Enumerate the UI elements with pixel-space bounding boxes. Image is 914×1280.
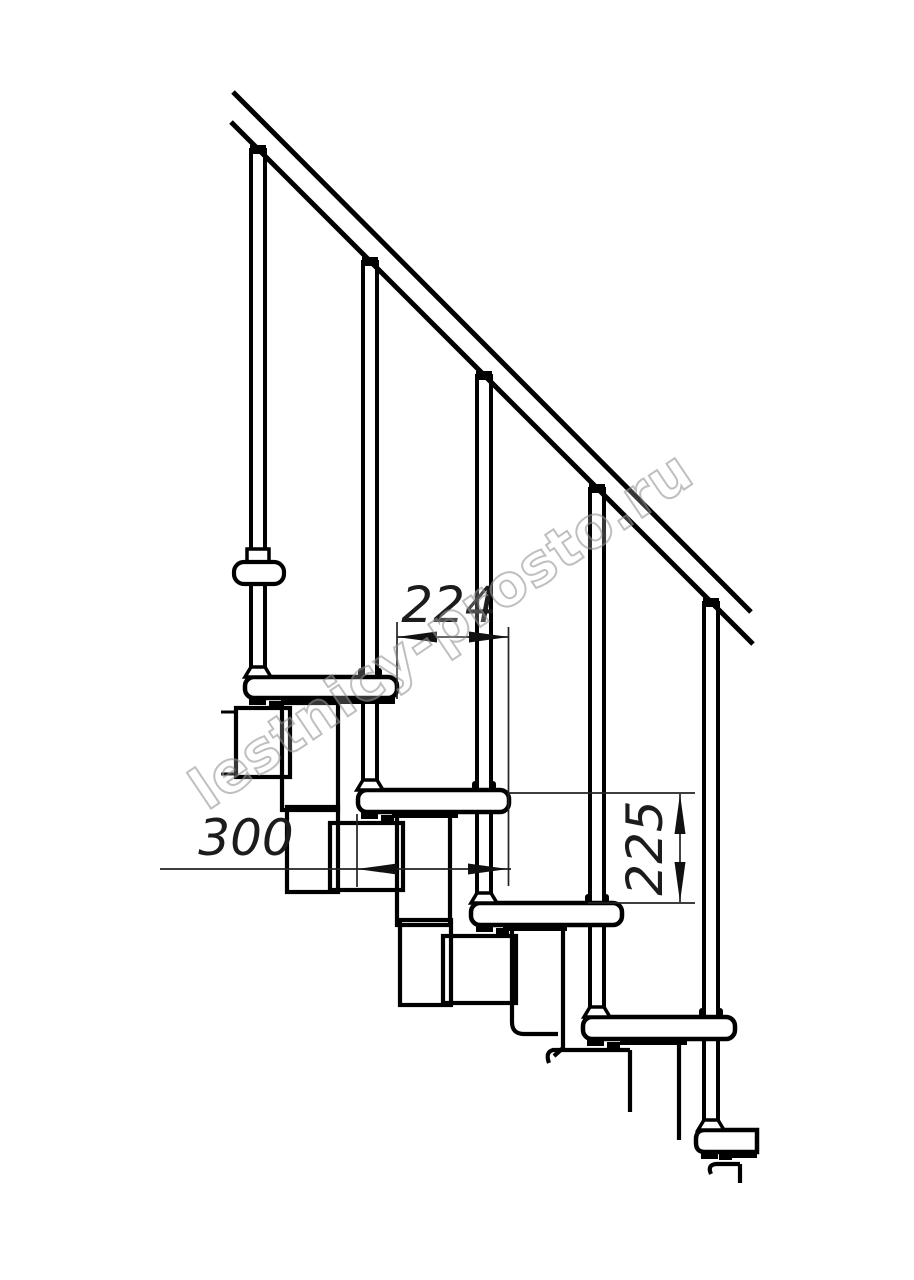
baluster-rail-cap [476, 371, 492, 380]
handrail-bracket [234, 562, 284, 584]
staircase-drawing-page: 224 300 225 lestnicy-prosto.ru [0, 0, 914, 1280]
baluster-collar [585, 894, 592, 903]
tread-2 [358, 790, 509, 812]
module-break-line [710, 1164, 740, 1174]
baluster-collar [699, 1008, 706, 1017]
module-box [443, 936, 516, 1003]
baluster-collar [602, 894, 609, 903]
baluster-foot [584, 1007, 610, 1017]
baluster-foot [357, 780, 383, 790]
baluster-foot [245, 667, 271, 677]
staircase-drawing: 224 300 225 lestnicy-prosto.ru [0, 0, 914, 1280]
baluster-collar [489, 781, 496, 790]
baluster-1 [250, 145, 266, 667]
baluster-foot [698, 1120, 724, 1130]
arrowhead-down [675, 862, 686, 902]
arrowhead-left [357, 864, 397, 875]
baluster-foot [471, 893, 497, 903]
arrowhead-up [675, 794, 686, 834]
baluster-rail-cap [703, 598, 719, 607]
module-box-cut [512, 927, 558, 1034]
baluster-5 [703, 598, 719, 1120]
baluster-collar [472, 781, 479, 790]
module-box-cut [554, 927, 563, 1056]
watermark: lestnicy-prosto.ru [178, 438, 705, 823]
module-break-line [548, 1050, 630, 1063]
tread-5 [696, 1130, 757, 1152]
baluster-rail-cap [362, 257, 378, 266]
dim-value-step-rise: 225 [616, 800, 674, 895]
baluster-rail-cap [250, 145, 266, 154]
arrowhead-right [468, 864, 508, 875]
support-modules [221, 703, 740, 1183]
module-box [330, 823, 403, 890]
tread-3 [471, 903, 622, 925]
baluster-collar [716, 1008, 723, 1017]
tread-4 [583, 1017, 735, 1039]
